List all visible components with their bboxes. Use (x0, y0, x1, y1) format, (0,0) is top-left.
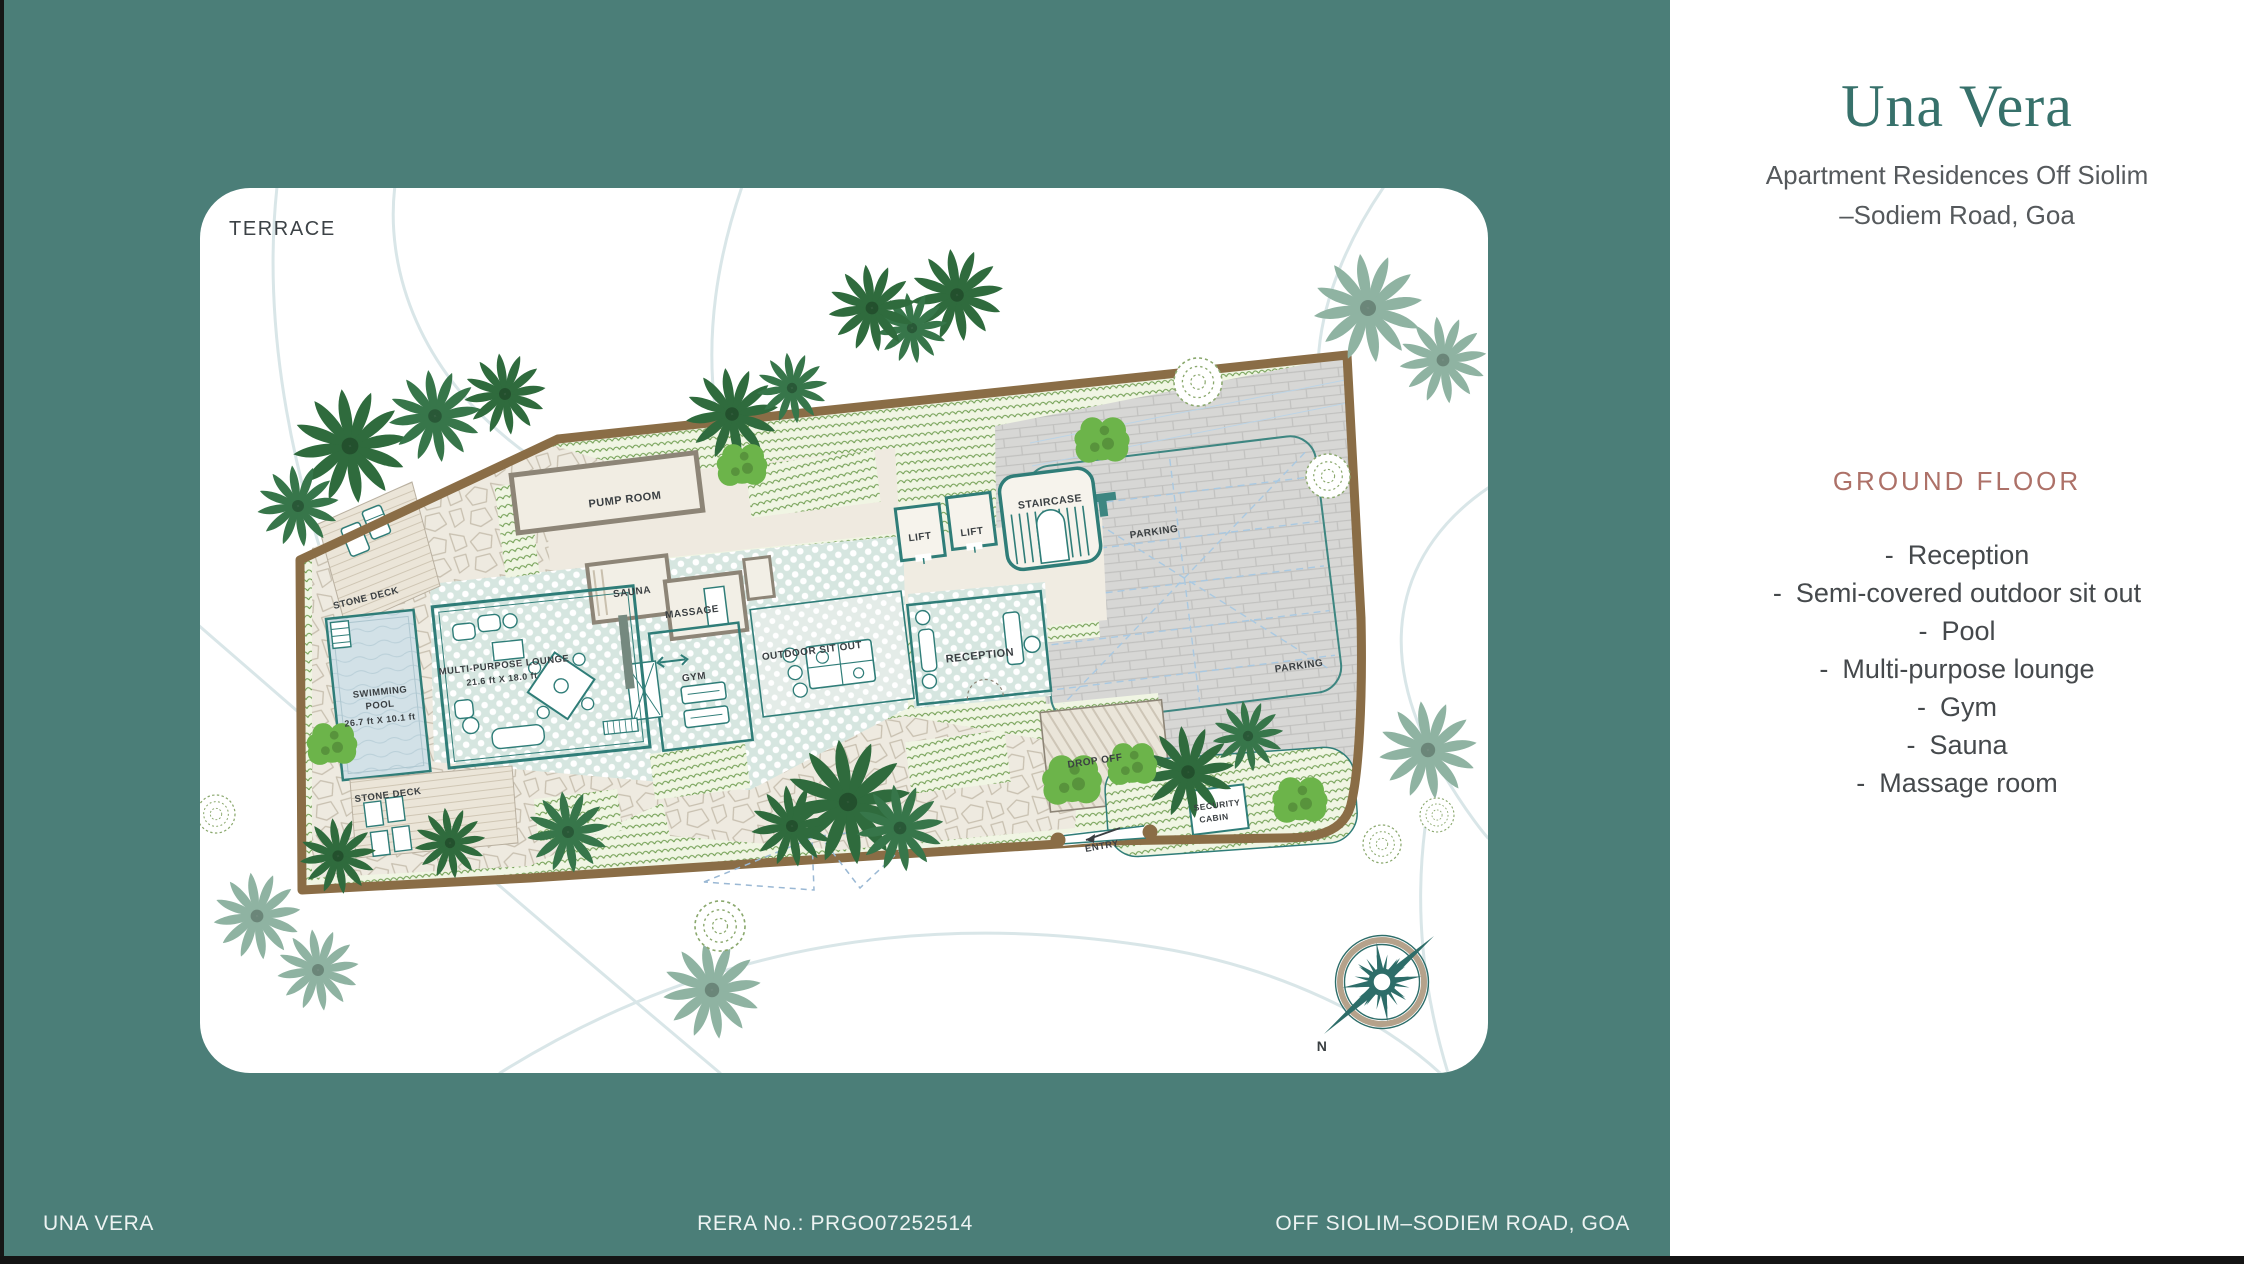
page-title: Una Vera (1670, 72, 2244, 141)
right-panel: Una Vera Apartment Residences Off Siolim… (1670, 0, 2244, 1256)
ground-floor-plan: PUMP ROOM SAUNA MASSAGE GYM MULTI-PURPOS… (200, 188, 1488, 1073)
teal-background: TERRACE (0, 0, 1670, 1256)
sage-palm-tree (214, 873, 300, 959)
bottom-edge-strip (0, 1256, 2244, 1264)
list-item: -Gym (1670, 688, 2244, 726)
list-item: -Multi-purpose lounge (1670, 650, 2244, 688)
page-subtitle-line2: –Sodiem Road, Goa (1670, 200, 2244, 231)
round-tree (1272, 777, 1327, 823)
outline-shrub (1306, 454, 1350, 498)
outline-shrub (695, 901, 745, 951)
sage-palm-tree (663, 941, 760, 1038)
round-tree (307, 723, 358, 765)
amenities-list: -Reception -Semi-covered outdoor sit out… (1670, 536, 2244, 802)
left-edge-strip (0, 0, 4, 1256)
staircase-room (998, 466, 1103, 571)
palm-tree (465, 354, 546, 435)
list-item: -Reception (1670, 536, 2244, 574)
outline-shrub (200, 795, 235, 833)
round-tree (1074, 417, 1129, 463)
list-item: -Sauna (1670, 726, 2244, 764)
sage-palm-tree (278, 930, 359, 1011)
site-plan-card: TERRACE (200, 188, 1488, 1073)
compass-north-label: N (1317, 1038, 1328, 1054)
page: TERRACE (0, 0, 2244, 1264)
outline-shrub (1174, 358, 1222, 406)
page-subtitle-line1: Apartment Residences Off Siolim (1670, 160, 2244, 191)
compass-rose (1324, 936, 1434, 1035)
outline-shrub (1420, 798, 1454, 832)
palm-tree (389, 370, 481, 462)
sage-palm-tree (1379, 701, 1476, 798)
round-tree (717, 444, 768, 486)
footer-bar: UNA VERA RERA No.: PRGO07252514 OFF SIOL… (0, 1192, 1670, 1256)
wc-room (744, 557, 775, 600)
list-item: -Massage room (1670, 764, 2244, 802)
footer-location: OFF SIOLIM–SODIEM ROAD, GOA (1275, 1192, 1630, 1256)
outline-shrub (1363, 825, 1401, 863)
terrace-label: TERRACE (229, 218, 336, 241)
list-item: -Pool (1670, 612, 2244, 650)
sage-palm-tree (1400, 317, 1486, 403)
list-item: -Semi-covered outdoor sit out (1670, 574, 2244, 612)
ground-floor-heading: GROUND FLOOR (1670, 466, 2244, 497)
